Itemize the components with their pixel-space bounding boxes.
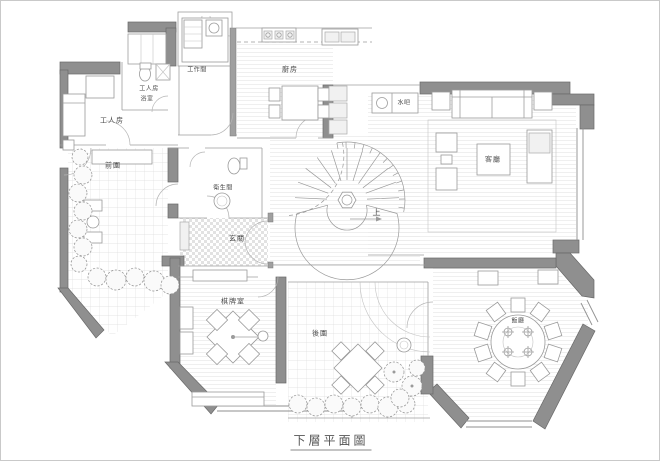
- label-water-bar: 水吧: [397, 99, 410, 107]
- floor-plan-drawing: [0, 0, 660, 461]
- label-kitchen: 廚房: [282, 66, 298, 75]
- label-living-room: 客廳: [485, 156, 501, 165]
- label-mahjong-room: 棋牌室: [221, 298, 245, 307]
- label-back-garden: 後園: [312, 330, 328, 339]
- label-maid-bathroom-line1: 工人房: [139, 85, 159, 93]
- label-stairs-up: 上: [373, 208, 382, 218]
- label-bathroom: 衛生間: [213, 184, 233, 192]
- label-foyer: 玄關: [229, 235, 245, 244]
- label-dining-room: 飯廳: [511, 317, 524, 325]
- label-front-garden: 前園: [105, 162, 121, 171]
- label-workroom: 工作間: [187, 66, 207, 74]
- floor-plan-page: 工人房 工人房 浴室 工作間 廚房 水吧 客廳 上 前園 衛生間 玄關 棋牌室 …: [0, 0, 660, 461]
- water-bar-counter: [372, 93, 418, 113]
- label-maid-room: 工人房: [100, 117, 124, 126]
- label-maid-bathroom-line2: 浴室: [140, 95, 153, 103]
- plan-caption: 下層平面圖: [290, 432, 371, 451]
